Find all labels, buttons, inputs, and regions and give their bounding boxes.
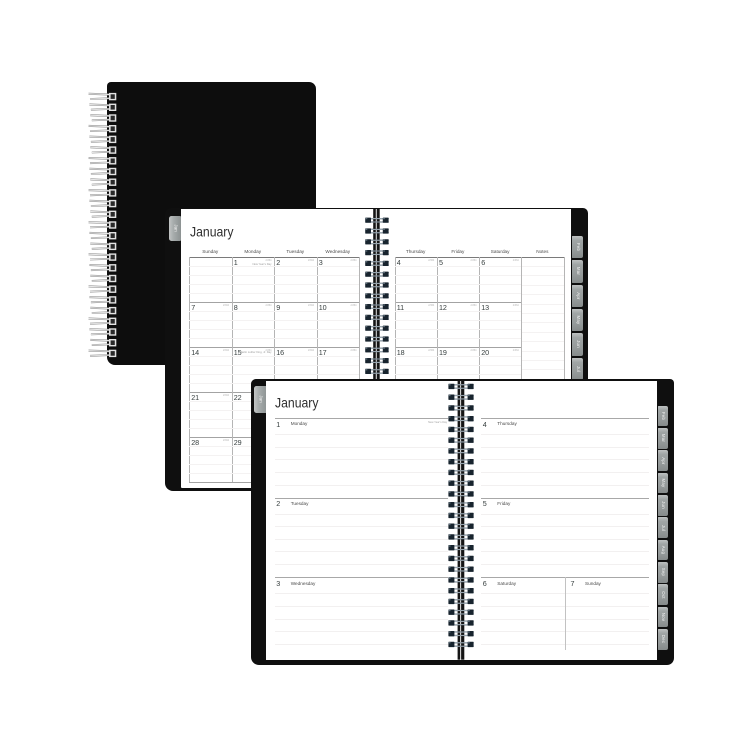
svg-text:January: January [190,224,234,240]
svg-text:January: January [275,395,319,411]
